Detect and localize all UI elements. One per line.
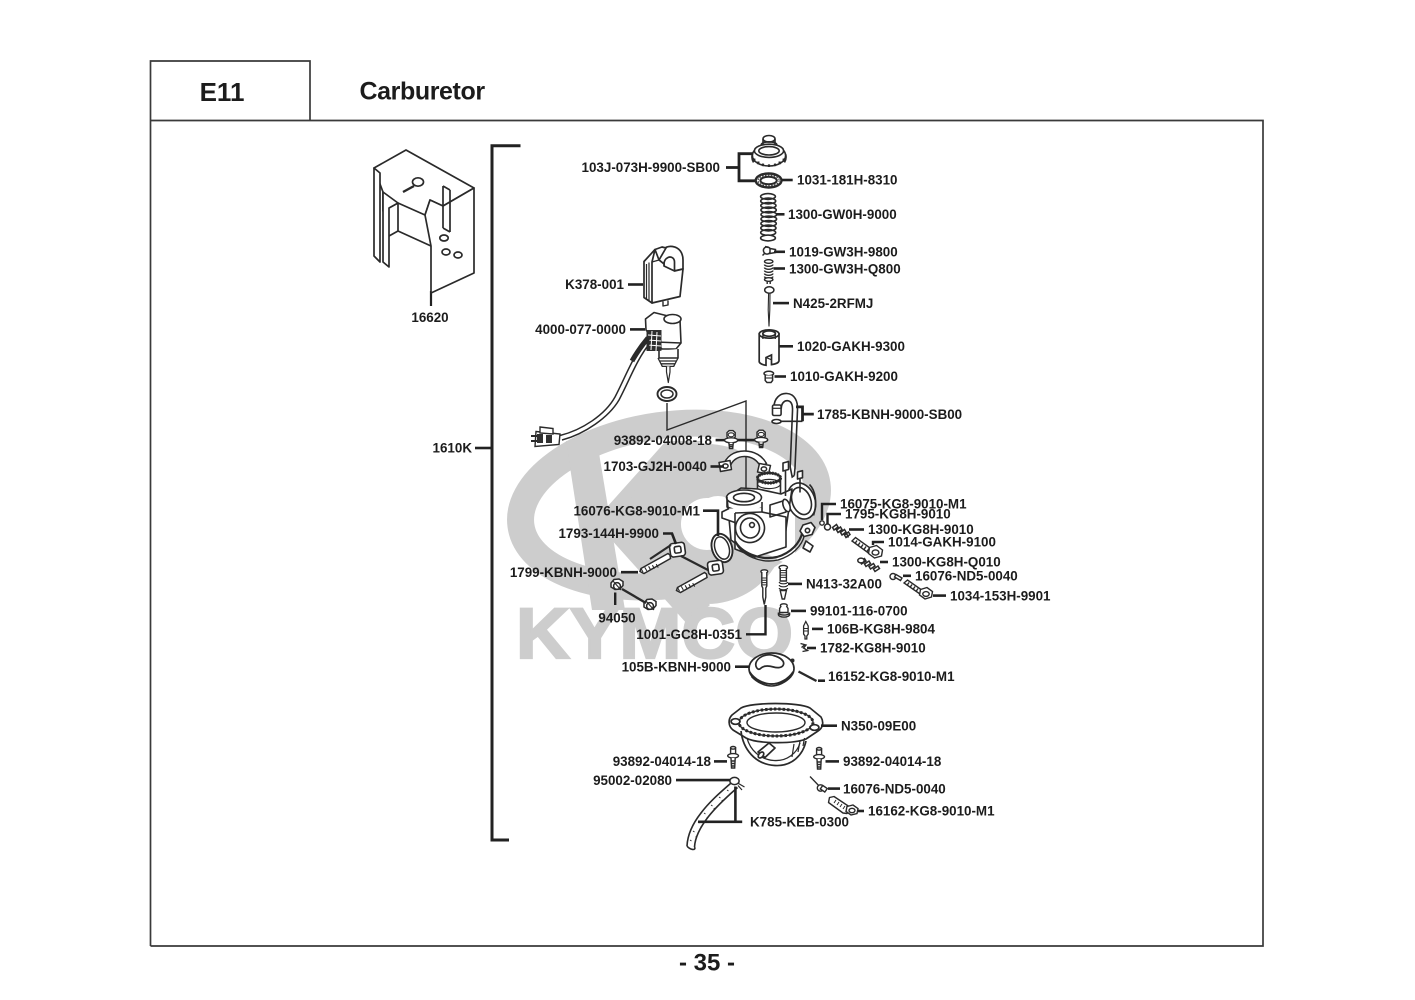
svg-text:E11: E11 (200, 77, 245, 107)
svg-text:94050: 94050 (598, 611, 635, 626)
svg-text:16152-KG8-9010-M1: 16152-KG8-9010-M1 (828, 669, 955, 684)
svg-text:103J-073H-9900-SB00: 103J-073H-9900-SB00 (582, 160, 720, 175)
svg-text:16620: 16620 (411, 310, 448, 325)
svg-text:1019-GW3H-9800: 1019-GW3H-9800 (789, 245, 898, 260)
svg-text:1300-KG8H-Q010: 1300-KG8H-Q010 (892, 555, 1001, 570)
svg-text:K378-001: K378-001 (565, 277, 624, 292)
svg-text:1010-GAKH-9200: 1010-GAKH-9200 (790, 369, 898, 384)
svg-text:93892-04014-18: 93892-04014-18 (843, 754, 942, 769)
svg-text:4000-077-0000: 4000-077-0000 (535, 322, 626, 337)
svg-text:93892-04008-18: 93892-04008-18 (614, 433, 713, 448)
svg-text:1034-153H-9901: 1034-153H-9901 (950, 588, 1051, 603)
svg-text:105B-KBNH-9000: 105B-KBNH-9000 (622, 659, 731, 674)
svg-text:1799-KBNH-9000: 1799-KBNH-9000 (510, 565, 617, 580)
svg-text:16162-KG8-9010-M1: 16162-KG8-9010-M1 (868, 804, 995, 819)
svg-text:1785-KBNH-9000-SB00: 1785-KBNH-9000-SB00 (817, 407, 962, 422)
svg-text:K785-KEB-0300: K785-KEB-0300 (750, 815, 849, 830)
svg-text:1014-GAKH-9100: 1014-GAKH-9100 (888, 535, 996, 550)
svg-text:1300-GW3H-Q800: 1300-GW3H-Q800 (789, 262, 901, 277)
svg-text:1001-GC8H-0351: 1001-GC8H-0351 (636, 627, 742, 642)
svg-text:99101-116-0700: 99101-116-0700 (810, 604, 908, 619)
svg-text:N413-32A00: N413-32A00 (806, 577, 882, 592)
svg-text:106B-KG8H-9804: 106B-KG8H-9804 (827, 622, 935, 637)
svg-text:16076-ND5-0040: 16076-ND5-0040 (915, 569, 1018, 584)
svg-text:1031-181H-8310: 1031-181H-8310 (797, 173, 898, 188)
svg-text:Carburetor: Carburetor (360, 78, 486, 106)
svg-text:N425-2RFMJ: N425-2RFMJ (793, 296, 873, 311)
svg-text:- 35 -: - 35 - (679, 950, 735, 977)
svg-text:16076-ND5-0040: 16076-ND5-0040 (843, 781, 946, 796)
svg-text:1020-GAKH-9300: 1020-GAKH-9300 (797, 339, 905, 354)
svg-text:1793-144H-9900: 1793-144H-9900 (558, 526, 659, 541)
svg-text:1703-GJ2H-0040: 1703-GJ2H-0040 (604, 459, 707, 474)
svg-text:1795-KG8H-9010: 1795-KG8H-9010 (845, 507, 951, 522)
svg-text:1300-GW0H-9000: 1300-GW0H-9000 (788, 207, 897, 222)
svg-text:16076-KG8-9010-M1: 16076-KG8-9010-M1 (573, 503, 700, 518)
svg-text:93892-04014-18: 93892-04014-18 (613, 754, 712, 769)
svg-text:1610K: 1610K (433, 441, 473, 456)
svg-text:1782-KG8H-9010: 1782-KG8H-9010 (820, 641, 926, 656)
svg-text:N350-09E00: N350-09E00 (841, 718, 916, 733)
svg-text:95002-02080: 95002-02080 (593, 773, 672, 788)
